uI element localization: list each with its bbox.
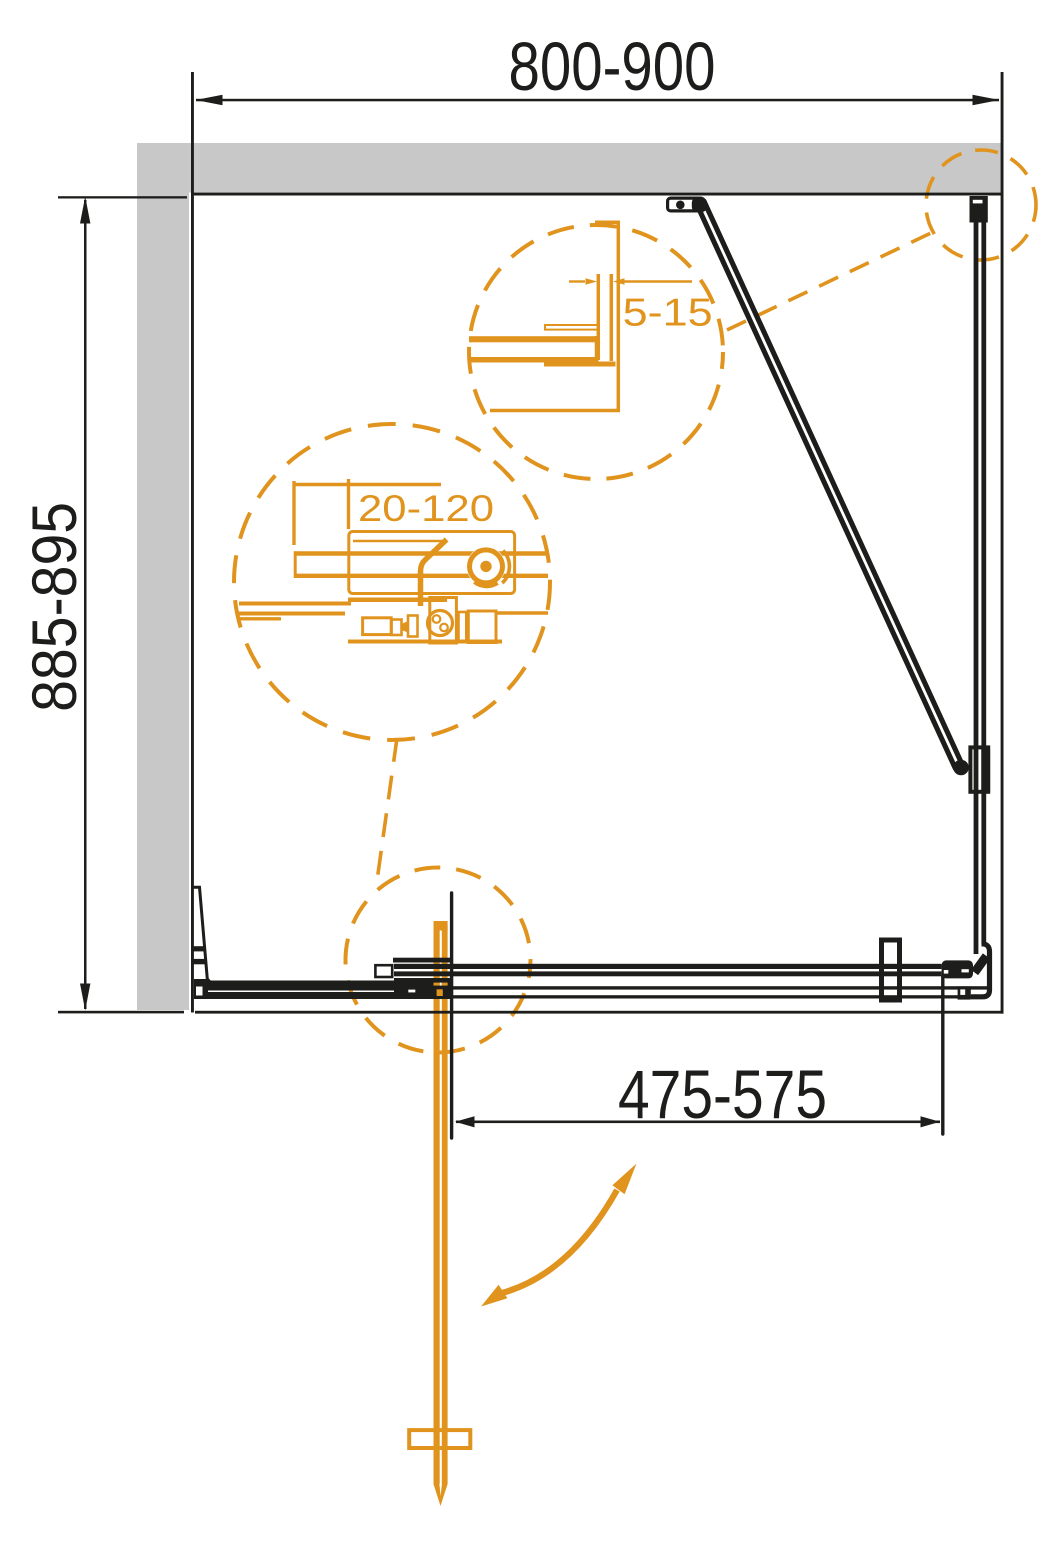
svg-text:475-575: 475-575 xyxy=(618,1056,827,1133)
svg-text:800-900: 800-900 xyxy=(509,28,716,105)
svg-text:20-120: 20-120 xyxy=(358,488,494,529)
svg-text:5-15: 5-15 xyxy=(623,292,713,335)
svg-text:885-895: 885-895 xyxy=(20,502,90,712)
